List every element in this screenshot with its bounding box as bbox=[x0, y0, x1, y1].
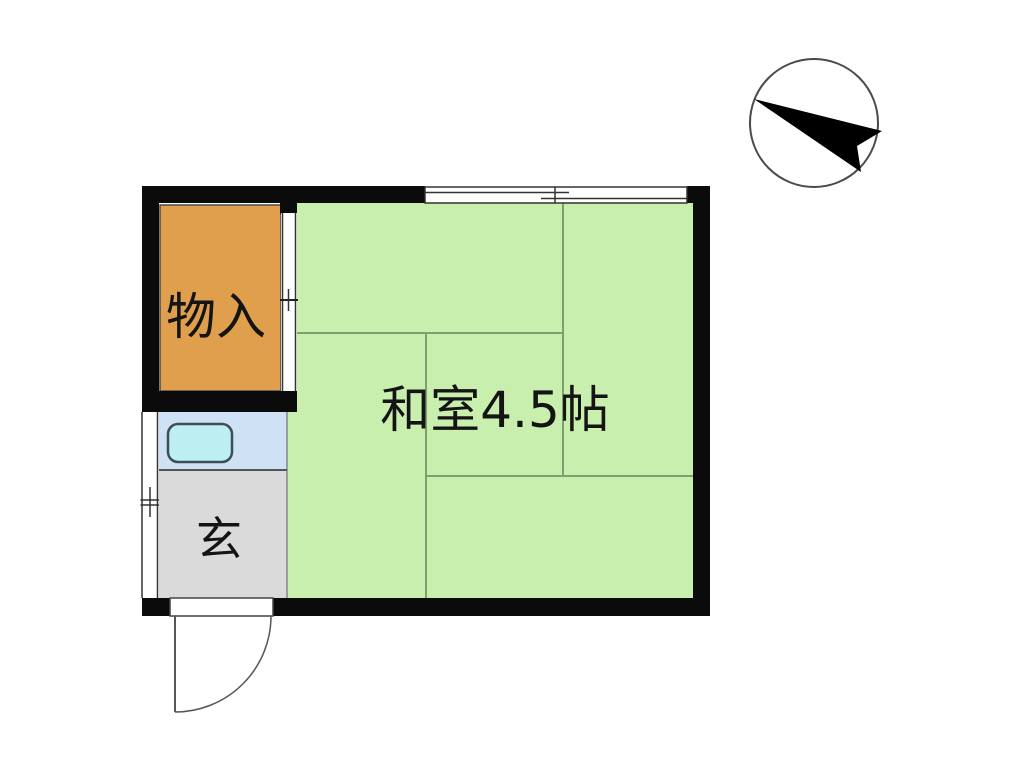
sink-fixture bbox=[168, 424, 232, 462]
storage-room-label: 物入 bbox=[166, 288, 266, 346]
floor-plan-drawing: 和室4.5帖 物入 玄 bbox=[0, 0, 1024, 768]
wall-top-left bbox=[142, 186, 425, 203]
wall-bottom-left bbox=[142, 598, 170, 616]
entry-door bbox=[170, 598, 273, 712]
top-window-frame bbox=[425, 187, 687, 203]
floor-plan: 和室4.5帖 物入 玄 bbox=[0, 0, 1024, 768]
left-window bbox=[141, 412, 160, 598]
wall-stub-above-storage-door bbox=[280, 203, 297, 214]
wall-storage-bottom bbox=[142, 391, 297, 412]
storage-sliding-door bbox=[280, 213, 298, 391]
wall-right bbox=[693, 186, 710, 616]
entry-door-opening bbox=[170, 598, 273, 616]
top-window bbox=[425, 187, 687, 203]
wall-left-upper bbox=[142, 186, 159, 412]
entrance-label: 玄 bbox=[196, 512, 242, 566]
compass bbox=[750, 59, 882, 187]
entry-door-swing-arc bbox=[175, 616, 271, 712]
wall-bottom bbox=[273, 598, 710, 616]
tatami-room-label: 和室4.5帖 bbox=[380, 381, 610, 439]
